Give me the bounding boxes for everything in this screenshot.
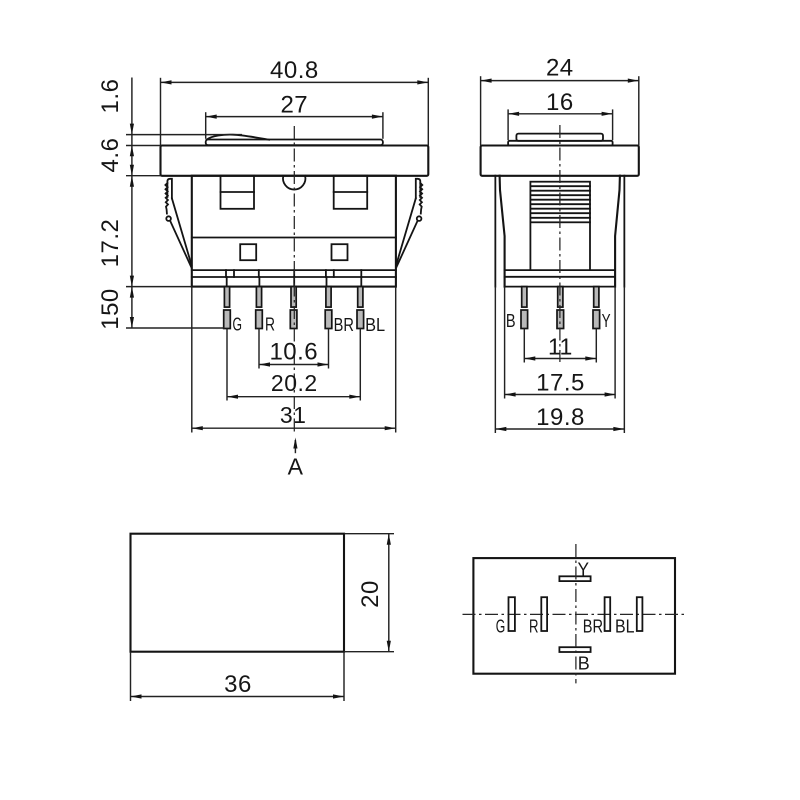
svg-text:B: B (506, 311, 516, 331)
svg-text:BR: BR (334, 315, 354, 335)
svg-text:150: 150 (97, 288, 124, 330)
svg-text:G: G (233, 315, 243, 335)
svg-text:10.6: 10.6 (269, 339, 318, 366)
svg-text:17.5: 17.5 (536, 370, 585, 397)
svg-text:R: R (529, 617, 539, 637)
svg-text:1.6: 1.6 (97, 79, 124, 114)
svg-text:20.2: 20.2 (271, 370, 318, 396)
svg-text:A: A (288, 454, 304, 480)
svg-text:11: 11 (548, 334, 573, 360)
svg-text:BR: BR (583, 617, 603, 637)
svg-text:36: 36 (224, 671, 252, 698)
svg-text:Y: Y (602, 311, 611, 331)
svg-text:R: R (265, 315, 275, 335)
svg-text:24: 24 (546, 55, 574, 82)
svg-text:31: 31 (280, 402, 307, 428)
svg-text:17.2: 17.2 (97, 219, 124, 268)
svg-text:40.8: 40.8 (270, 57, 319, 84)
svg-text:BL: BL (615, 617, 635, 637)
svg-text:B: B (578, 654, 590, 674)
svg-text:20: 20 (357, 580, 384, 608)
svg-text:BL: BL (365, 315, 385, 335)
svg-text:27: 27 (280, 92, 308, 119)
svg-text:Y: Y (578, 560, 590, 580)
svg-text:G: G (496, 617, 506, 637)
svg-text:19.8: 19.8 (536, 404, 585, 431)
svg-text:4.6: 4.6 (97, 138, 124, 173)
svg-text:16: 16 (546, 89, 574, 116)
